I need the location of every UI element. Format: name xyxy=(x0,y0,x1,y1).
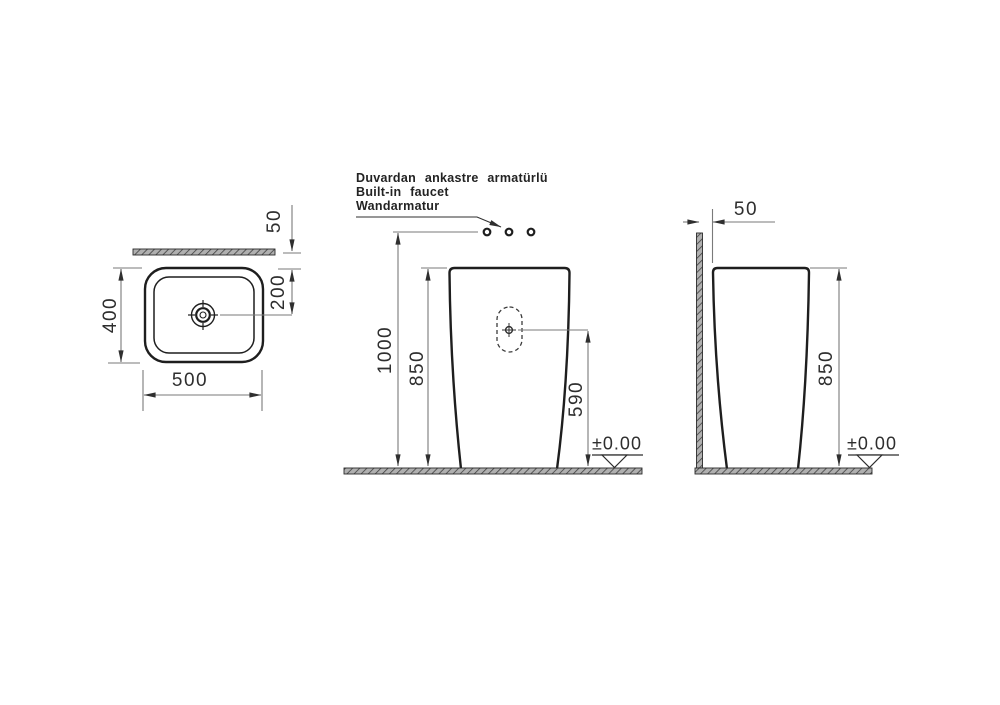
dim-label-wall-gap-top: 50 xyxy=(264,209,286,233)
wall-hatch-top-view xyxy=(133,249,275,255)
dim-label-drain-height: 590 xyxy=(566,381,588,417)
level-label-front: ±0.00 xyxy=(592,434,642,455)
level-symbol-front xyxy=(592,455,643,468)
technical-drawing-canvas: Duvardan ankastre armatürlü Built-in fau… xyxy=(0,0,1000,705)
level-label-side: ±0.00 xyxy=(847,434,897,455)
faucet-note-line-tr: Duvardan ankastre armatürlü xyxy=(356,171,548,185)
level-symbol-side xyxy=(848,455,899,468)
faucet-note-line-en: Built-in faucet xyxy=(356,185,548,199)
dim-label-width: 500 xyxy=(172,370,208,392)
dim-label-depth: 400 xyxy=(100,297,122,333)
dim-label-rim-height-side: 850 xyxy=(816,350,838,386)
faucet-note-line-de: Wandarmatur xyxy=(356,199,548,213)
dim-label-drain-offset: 200 xyxy=(268,274,290,310)
faucet-holes xyxy=(484,229,535,236)
dim-label-faucet-height: 1000 xyxy=(375,326,397,374)
faucet-note: Duvardan ankastre armatürlü Built-in fau… xyxy=(356,171,548,214)
floor-hatch-side-view xyxy=(695,468,872,474)
pedestal-outline-front xyxy=(450,268,570,469)
drawing-linework xyxy=(0,0,1000,705)
dim-label-rim-height-front: 850 xyxy=(407,350,429,386)
floor-hatch-front-view xyxy=(344,468,642,474)
dim-label-wall-gap-side: 50 xyxy=(734,199,758,221)
wall-hatch-side-view xyxy=(697,233,703,468)
note-leader-line xyxy=(356,217,501,227)
pedestal-outline-side xyxy=(713,268,809,469)
